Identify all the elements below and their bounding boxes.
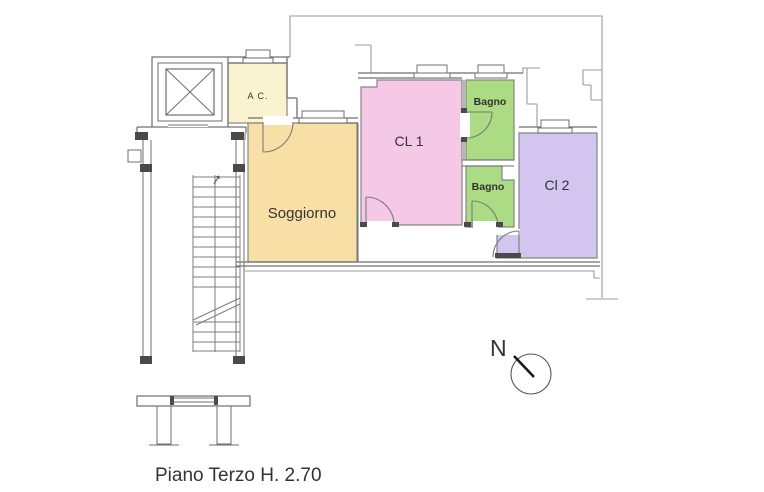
window-cl1-left (414, 65, 450, 78)
compass-north-label: N (490, 335, 507, 361)
plan-caption: Piano Terzo H. 2.70 (155, 465, 322, 486)
window-soggiorno (299, 111, 347, 123)
floor-plan-canvas: N A C. Soggiorno CL 1 Bagno Bagno Cl 2 P… (0, 0, 764, 492)
elevator-cross-icon (166, 69, 214, 115)
room-bagno1 (466, 80, 514, 160)
stair-break-line (193, 298, 240, 325)
label-cl1: CL 1 (394, 133, 423, 149)
label-cl2: Cl 2 (545, 177, 570, 193)
label-bagno1: Bagno (474, 96, 507, 108)
window-cl2 (538, 120, 572, 133)
stairs (193, 175, 240, 352)
label-soggiorno: Soggiorno (268, 205, 336, 222)
label-bagno2: Bagno (472, 181, 505, 193)
compass: N (490, 335, 551, 394)
room-cl1 (361, 80, 462, 225)
room-soggiorno (248, 123, 357, 262)
elevator-shaft (152, 57, 228, 127)
window-cl1-right (475, 65, 507, 78)
room-bagno2 (466, 166, 514, 227)
label-ac: A C. (247, 91, 268, 101)
floor-plan-svg: N A C. Soggiorno CL 1 Bagno Bagno Cl 2 P… (0, 0, 764, 492)
compass-needle (514, 356, 534, 377)
window-ac (243, 50, 273, 63)
rooms (228, 63, 597, 262)
